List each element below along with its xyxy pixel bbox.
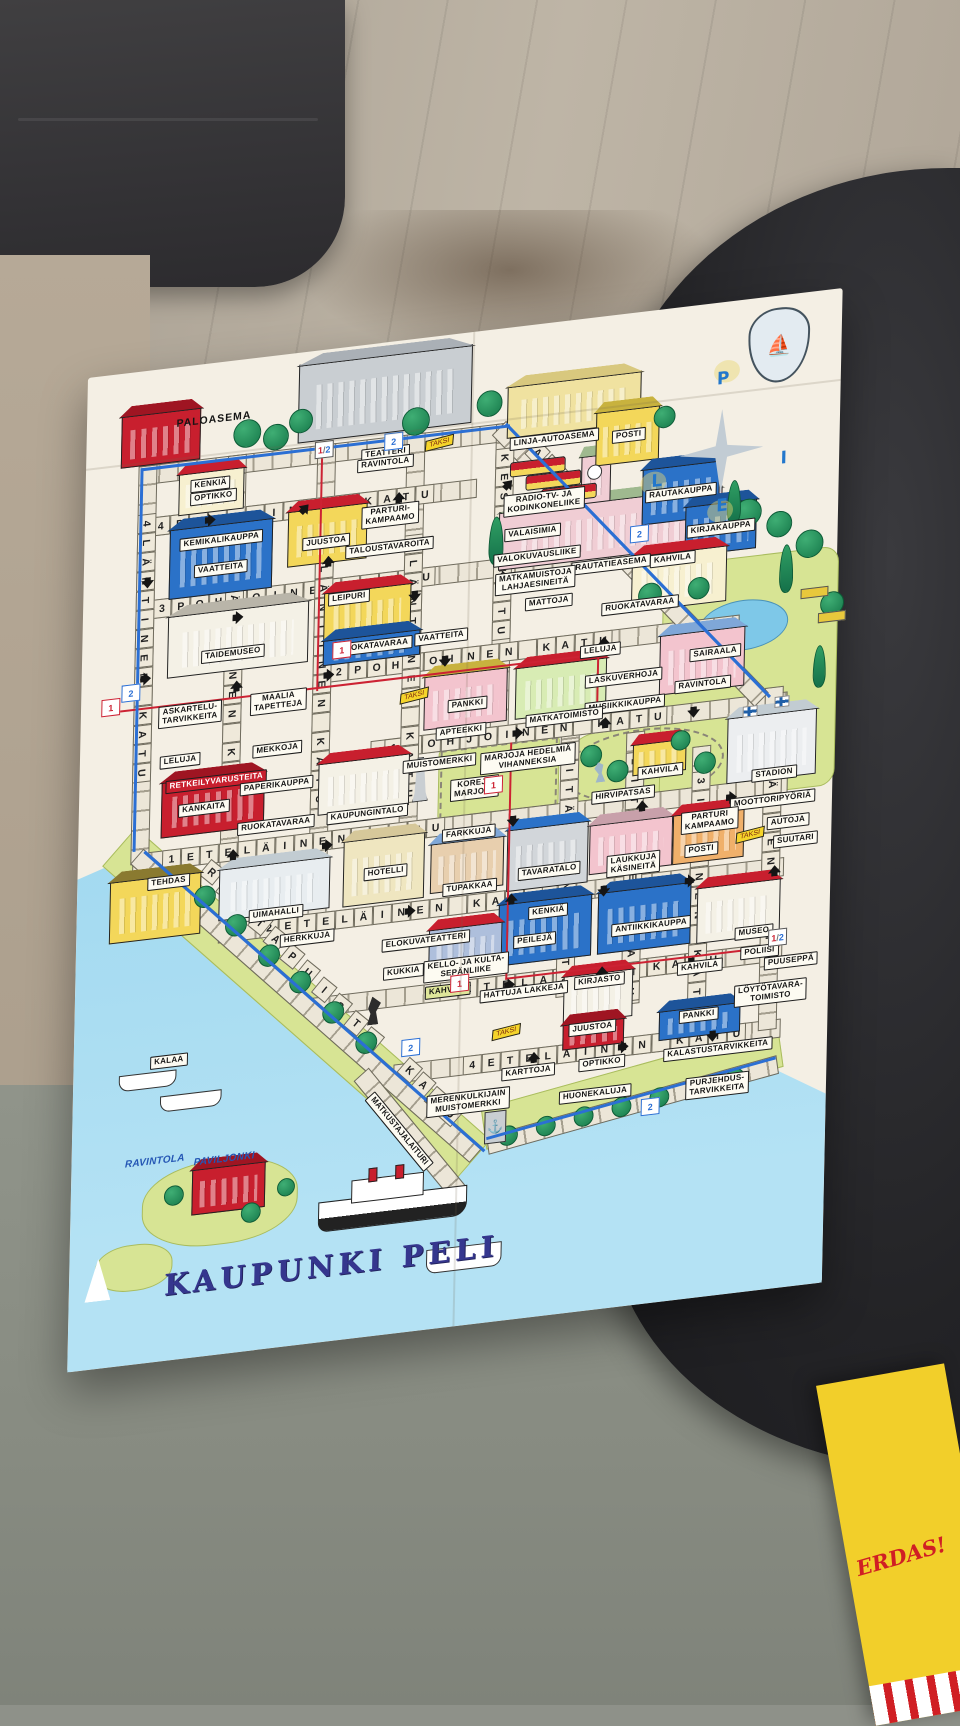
windows xyxy=(182,619,294,667)
street-letter: E xyxy=(482,1052,501,1073)
route-marker: 2 xyxy=(641,1097,660,1116)
street-letter: N xyxy=(312,692,331,713)
couch xyxy=(0,0,345,287)
teatteri-building xyxy=(298,344,473,443)
street-letter: A xyxy=(611,710,630,731)
linja-autoasema-roof xyxy=(505,361,645,389)
street-letter: U xyxy=(648,706,667,727)
label-maalia-tapetteja: MAALIA TAPETTEJA xyxy=(250,687,307,716)
route-marker: 1 xyxy=(484,775,503,794)
route-marker: 1 xyxy=(101,698,120,717)
finnish-flag-icon xyxy=(774,695,789,708)
route-marker: 2 xyxy=(121,683,140,702)
label-leluja: LELUJA xyxy=(160,752,201,770)
route-marker-number: 2 xyxy=(779,931,784,942)
game-box-text: ERDAS! xyxy=(853,1531,949,1580)
route-marker: 1/2 xyxy=(768,928,787,947)
label-löytötavara-toimisto: LÖYTÖTAVARA- TOIMISTO xyxy=(734,977,807,1008)
street-letter: L xyxy=(404,553,423,574)
taidemuseo-building xyxy=(167,599,309,678)
windows xyxy=(119,890,191,934)
route-marker: 1 xyxy=(332,640,351,659)
route-marker-number: 2 xyxy=(325,444,330,455)
windows xyxy=(328,769,400,807)
street-letter: K xyxy=(222,741,241,762)
label-kukkia: KUKKIA xyxy=(383,963,424,981)
street-letter: L xyxy=(335,908,354,929)
compass-east-label: I xyxy=(780,448,787,469)
street-letter: N xyxy=(429,897,448,918)
city-crest: ⛵ xyxy=(747,304,810,386)
windows xyxy=(230,872,318,912)
couch-seam xyxy=(18,118,318,121)
game-box-artwork xyxy=(869,1664,960,1726)
route-marker: 2 xyxy=(401,1038,420,1057)
compass-west-label: L xyxy=(651,471,662,492)
compass-north-label: P xyxy=(717,368,730,390)
ship-funnel xyxy=(369,1167,378,1182)
tree-icon xyxy=(476,389,502,418)
street-letter: K xyxy=(467,892,486,913)
street-letter: N xyxy=(222,703,241,724)
tree-icon xyxy=(653,405,675,430)
kaupungintalo-roof xyxy=(316,743,414,766)
street-letter xyxy=(222,722,241,743)
street-letter: K xyxy=(400,725,419,746)
street-letter: N xyxy=(499,641,518,662)
street-letter: 4 xyxy=(463,1054,482,1075)
label-mattoja: MATTOJA xyxy=(525,593,573,612)
route-marker: 2 xyxy=(630,524,649,543)
street-letter: I xyxy=(373,904,392,925)
street-letter: U xyxy=(492,620,511,641)
game-board-map: 4POHJOINENKATU3POHJOINENKATU2POHJOINENKA… xyxy=(67,288,842,1372)
ship-funnel xyxy=(395,1164,404,1179)
street-letter: Ä xyxy=(354,906,373,927)
windows xyxy=(316,369,454,430)
street-letter: K xyxy=(311,731,330,752)
street-letter xyxy=(401,706,420,727)
compass-south-label: E xyxy=(716,495,728,517)
street-letter: N xyxy=(632,1034,651,1055)
street-letter: T xyxy=(560,779,579,800)
label-taksi: TAKSI xyxy=(492,1023,521,1041)
label-mekkoja: MEKKOJA xyxy=(252,740,302,759)
finnish-flag-icon xyxy=(743,705,758,718)
street-letter xyxy=(448,895,467,916)
street-letter: T xyxy=(629,708,648,729)
tavaratalo-building xyxy=(506,820,589,892)
street-letter xyxy=(311,712,330,733)
tree-icon xyxy=(766,510,792,539)
street-letter: T xyxy=(492,600,511,621)
label-vaatteita: VAATTEITA xyxy=(414,627,468,646)
